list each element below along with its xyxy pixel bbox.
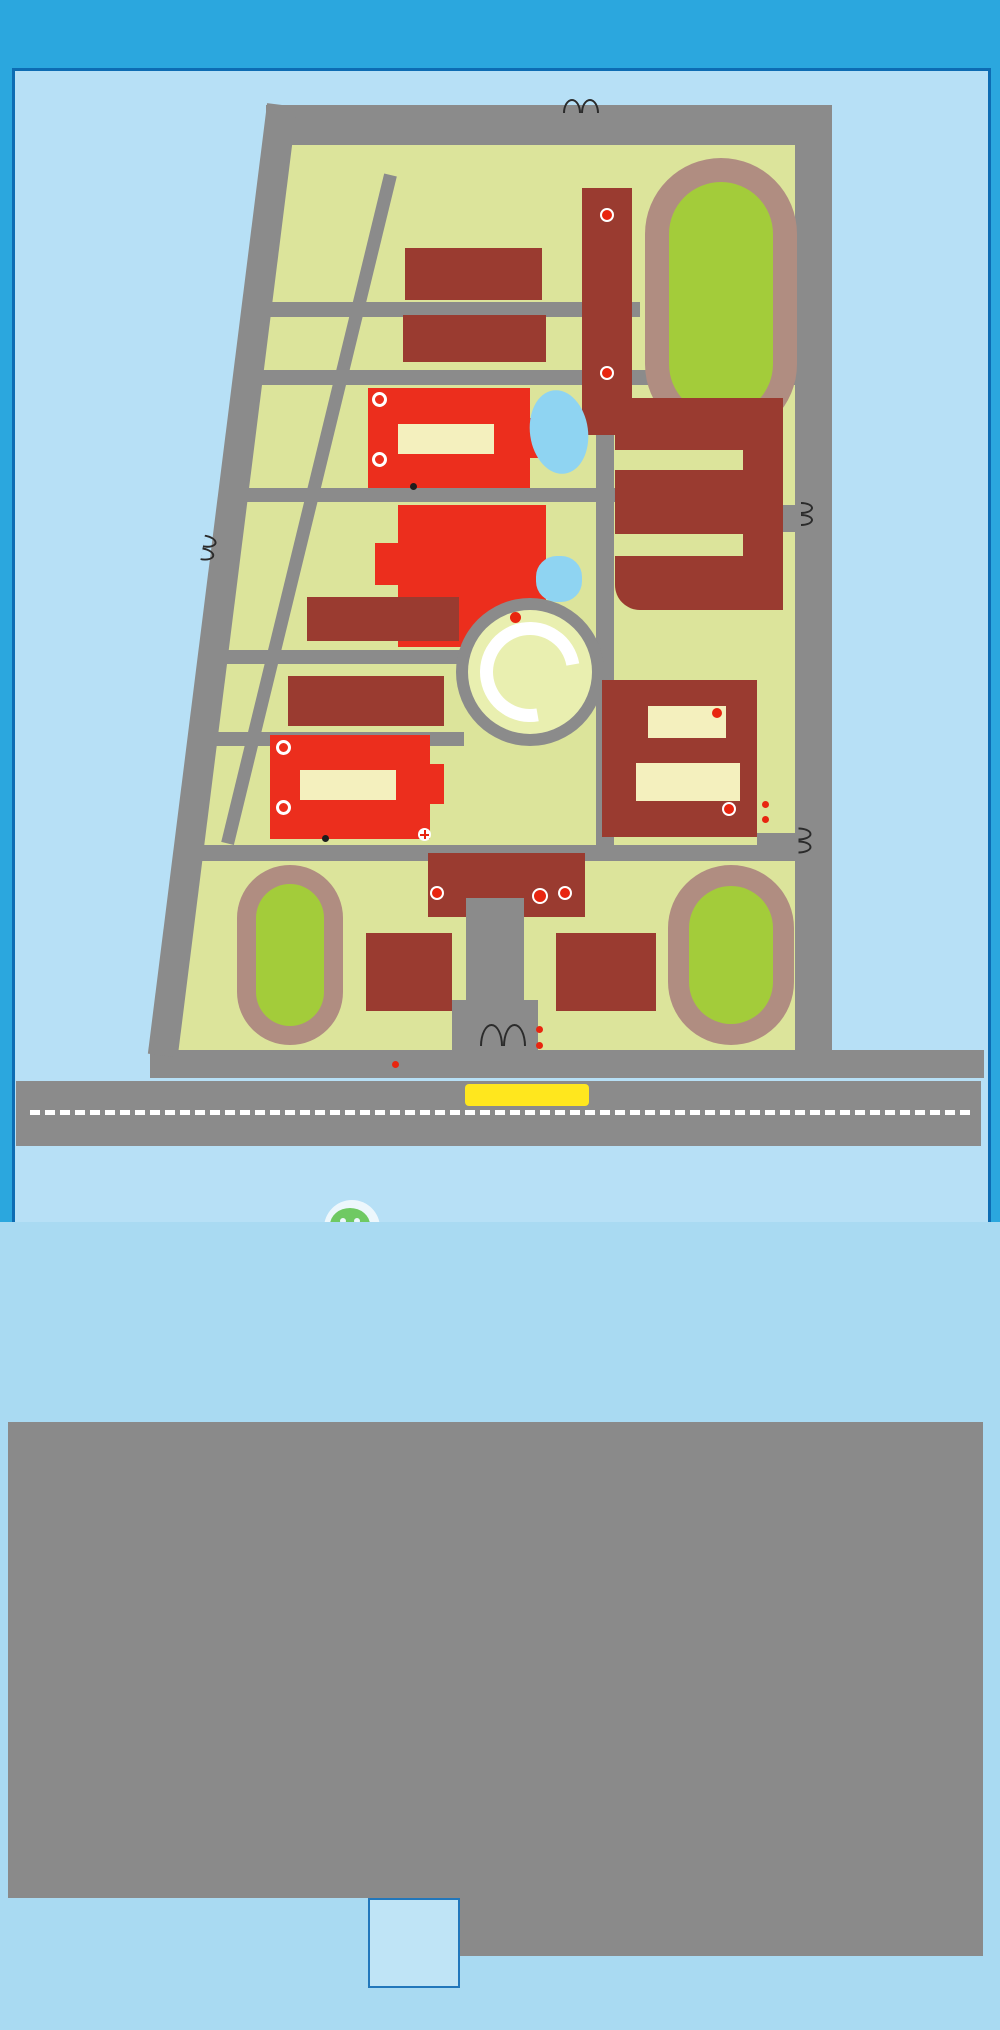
ms-boys-dorm bbox=[288, 676, 444, 726]
road-h3 bbox=[230, 488, 616, 502]
tea-supply-note bbox=[410, 482, 420, 492]
office-courtyard bbox=[466, 898, 524, 918]
wc-marker bbox=[712, 802, 746, 818]
kindergarten-bar3 bbox=[615, 556, 745, 610]
kindergarten-bar2 bbox=[615, 470, 745, 534]
wc-marker bbox=[266, 740, 300, 757]
primary-inset-bottom bbox=[636, 763, 740, 801]
ms-girls-dorm bbox=[307, 597, 459, 641]
kindergarten-bar1 bbox=[615, 398, 745, 450]
wc-marker bbox=[420, 886, 454, 902]
floorplan-connector bbox=[368, 1898, 460, 1988]
road-south-ring bbox=[150, 1050, 984, 1078]
south-entrance-label bbox=[465, 1084, 589, 1106]
floorplan-section-ext bbox=[460, 1898, 983, 1956]
ms-exam-rooms-range bbox=[300, 770, 396, 800]
road-east-gate-stub bbox=[757, 833, 797, 857]
floorplan-section bbox=[8, 1422, 983, 1898]
wc-marker bbox=[590, 208, 624, 224]
road-h4 bbox=[207, 650, 465, 664]
police-office-note bbox=[536, 1024, 546, 1035]
swimming-hall bbox=[366, 933, 452, 1011]
water-pond-lower bbox=[536, 556, 582, 602]
wc-marker bbox=[362, 392, 396, 409]
consult-note-east bbox=[762, 815, 772, 824]
north-gate-icon bbox=[563, 99, 599, 113]
temp-rest-note-east bbox=[762, 800, 772, 809]
main-road-dashed-line bbox=[30, 1110, 970, 1115]
kindergarten-spine bbox=[743, 398, 783, 610]
road-east-ring bbox=[795, 105, 832, 1078]
wc-marker bbox=[590, 366, 624, 382]
temp-rest-note-south bbox=[392, 1060, 402, 1070]
sports-field-se bbox=[668, 865, 794, 1045]
east-gate-icon bbox=[799, 828, 812, 854]
broadcast-dot bbox=[532, 888, 548, 904]
hs-girls-dorm bbox=[403, 315, 546, 362]
south-gate-icon bbox=[480, 1024, 526, 1046]
wall-north bbox=[266, 105, 832, 145]
hs-boys-dorm bbox=[405, 248, 542, 300]
consult-note-south bbox=[536, 1040, 546, 1051]
kindergarten-gate-icon bbox=[801, 502, 813, 526]
basketball-hall bbox=[556, 933, 656, 1011]
wc-marker bbox=[498, 612, 532, 625]
hs-exam-rooms-range bbox=[398, 424, 494, 454]
wc-marker bbox=[266, 800, 300, 817]
video-monitor-dot bbox=[712, 708, 722, 718]
tea-supply-note-2 bbox=[322, 834, 332, 844]
red-cross-icon bbox=[418, 828, 431, 841]
wc-marker bbox=[548, 886, 582, 902]
lecture-hall-tab bbox=[375, 543, 399, 585]
sports-field-sw bbox=[237, 865, 343, 1045]
ms-teaching-tab bbox=[430, 764, 444, 804]
health-station bbox=[418, 826, 431, 844]
wc-marker bbox=[362, 452, 396, 469]
